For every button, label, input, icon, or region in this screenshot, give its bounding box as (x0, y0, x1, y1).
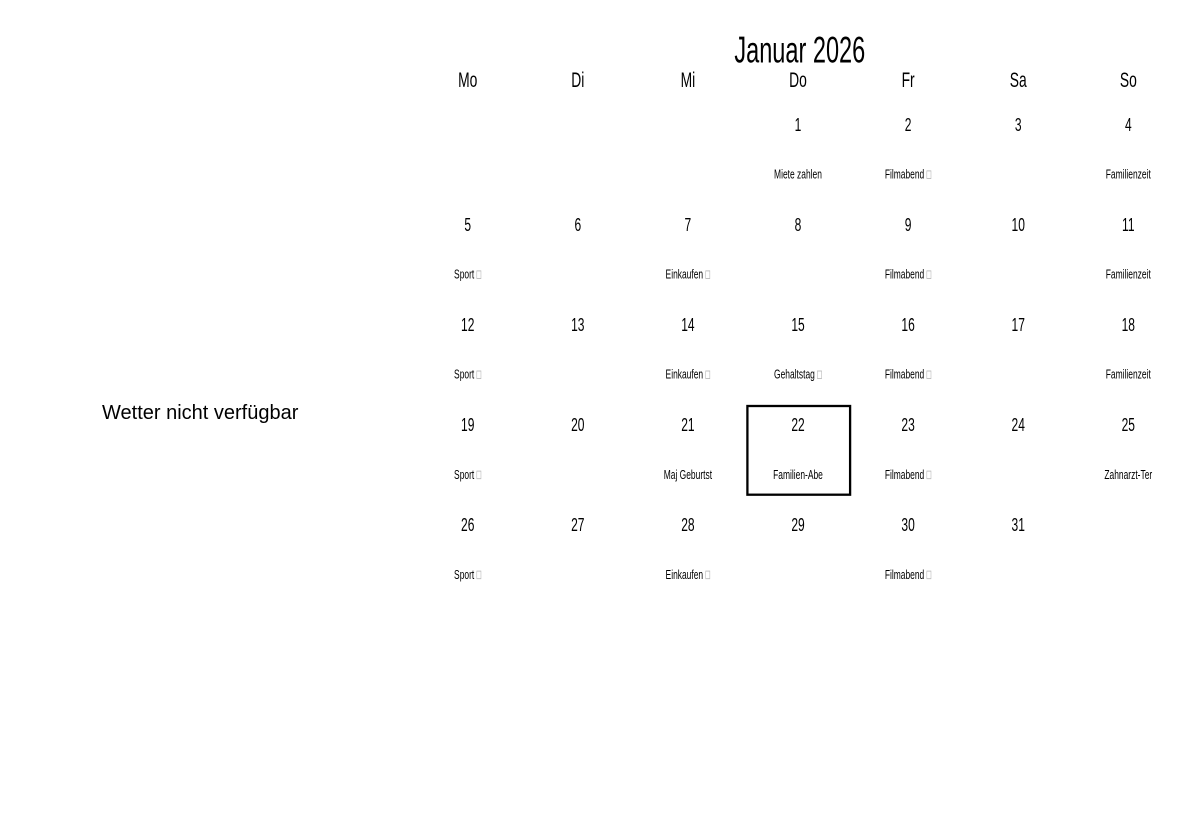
svg-text:29: 29 (791, 516, 804, 536)
svg-text:5: 5 (464, 216, 471, 236)
svg-text:Filmabend: Filmabend (885, 368, 924, 382)
svg-text:13: 13 (571, 316, 584, 336)
svg-text:Filmabend: Filmabend (885, 468, 924, 482)
svg-text:19: 19 (461, 416, 474, 436)
svg-text:31: 31 (1012, 516, 1025, 536)
svg-text:11: 11 (1122, 216, 1134, 236)
svg-text:30: 30 (901, 516, 915, 536)
svg-text:16: 16 (901, 316, 914, 336)
svg-text:Miete zahlen: Miete zahlen (774, 168, 822, 182)
svg-text:3: 3 (1015, 116, 1022, 136)
svg-text:22: 22 (791, 416, 804, 436)
svg-text:Maj Geburtst: Maj Geburtst (664, 468, 712, 482)
svg-text:Sport: Sport (454, 468, 474, 482)
svg-text:12: 12 (461, 316, 474, 336)
svg-text:Filmabend: Filmabend (885, 268, 924, 282)
svg-text:27: 27 (571, 516, 584, 536)
svg-text:24: 24 (1012, 416, 1026, 436)
svg-text:4: 4 (1125, 116, 1132, 136)
svg-text:So: So (1120, 68, 1137, 92)
svg-text:Fr: Fr (902, 68, 915, 92)
svg-text:Mi: Mi (681, 68, 696, 92)
svg-text:Zahnarzt-Ter: Zahnarzt-Ter (1104, 468, 1152, 482)
svg-text:Mo: Mo (458, 68, 477, 92)
svg-text:6: 6 (574, 216, 581, 236)
svg-text:23: 23 (901, 416, 914, 436)
svg-text:1: 1 (795, 116, 802, 136)
svg-text:7: 7 (685, 216, 692, 236)
svg-text:Sa: Sa (1010, 68, 1027, 92)
svg-text:Familien-Abe: Familien-Abe (773, 468, 823, 482)
svg-text:Familienzeit: Familienzeit (1106, 368, 1151, 382)
svg-text:Familienzeit: Familienzeit (1106, 268, 1151, 282)
svg-text:Sport: Sport (454, 568, 474, 582)
svg-text:Einkaufen: Einkaufen (666, 268, 704, 282)
svg-text:Januar 2026: Januar 2026 (734, 29, 865, 71)
svg-text:15: 15 (791, 316, 805, 336)
svg-text:Do: Do (789, 68, 807, 92)
svg-text:Gehaltstag: Gehaltstag (774, 368, 815, 382)
svg-text:28: 28 (681, 516, 694, 536)
svg-text:14: 14 (681, 316, 695, 336)
svg-text:8: 8 (795, 216, 802, 236)
svg-text:18: 18 (1122, 316, 1135, 336)
svg-text:Wetter nicht verfügbar: Wetter nicht verfügbar (102, 402, 299, 424)
svg-text:26: 26 (461, 516, 474, 536)
svg-text:Einkaufen: Einkaufen (666, 568, 704, 582)
svg-text:9: 9 (905, 216, 912, 236)
svg-text:Sport: Sport (454, 368, 474, 382)
svg-text:10: 10 (1012, 216, 1026, 236)
svg-text:Filmabend: Filmabend (885, 568, 924, 582)
svg-text:Filmabend: Filmabend (885, 168, 924, 182)
svg-text:20: 20 (571, 416, 585, 436)
svg-text:Einkaufen: Einkaufen (666, 368, 704, 382)
svg-text:Sport: Sport (454, 268, 474, 282)
svg-text:Di: Di (571, 68, 584, 92)
svg-text:17: 17 (1012, 316, 1025, 336)
svg-text:2: 2 (905, 116, 912, 136)
svg-text:25: 25 (1122, 416, 1136, 436)
svg-text:21: 21 (681, 416, 694, 436)
svg-text:Familienzeit: Familienzeit (1106, 168, 1151, 182)
